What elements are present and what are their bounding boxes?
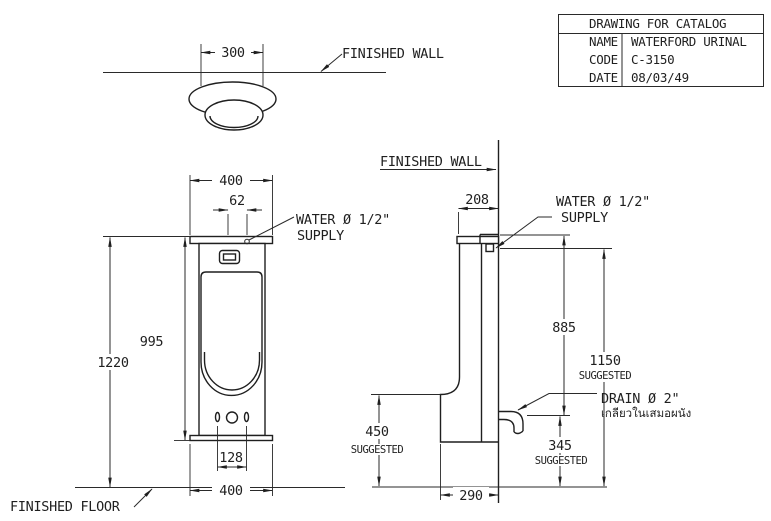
- dim-345: 345: [548, 438, 572, 454]
- title-row-label: NAME: [589, 34, 618, 49]
- water-supply-label-side-1: WATER Ø 1/2": [556, 194, 650, 210]
- dim-128: 128: [219, 450, 243, 466]
- dim-450-note: SUGGESTED: [351, 444, 404, 456]
- dim-290: 290: [459, 488, 483, 504]
- dim-995: 995: [140, 334, 164, 350]
- title-row-label: DATE: [589, 70, 618, 85]
- finished-floor-leader: [134, 489, 152, 507]
- top-view: FINISHED WALL 300: [103, 44, 444, 130]
- title-block-title: DRAWING FOR CATALOG: [589, 16, 726, 31]
- water-supply-label-side-2: SUPPLY: [561, 210, 608, 226]
- finished-wall-leader: [321, 54, 342, 72]
- dim-300: 300: [221, 45, 245, 61]
- water-supply-label-front-1: WATER Ø 1/2": [296, 212, 390, 228]
- catalog-drawing-page: FINISHED WALL 300 400 62: [0, 0, 771, 521]
- dim-1150-note: SUGGESTED: [579, 370, 632, 382]
- front-lid: [190, 237, 273, 244]
- title-row-value: WATERFORD URINAL: [631, 34, 747, 49]
- dim-208: 208: [465, 192, 489, 208]
- side-supply-fitting: [486, 244, 494, 252]
- water-supply-leader-side: [496, 217, 552, 248]
- title-row-value: C-3150: [631, 52, 674, 67]
- drain-leader: [518, 394, 597, 411]
- title-block: DRAWING FOR CATALOG NAME WATERFORD URINA…: [559, 15, 764, 87]
- drain-label: DRAIN Ø 2": [601, 391, 679, 407]
- dim-400-bottom: 400: [219, 483, 243, 499]
- dim-400-top: 400: [219, 173, 243, 189]
- side-lip-and-bottom: [441, 377, 499, 442]
- urinal-top-dome: [205, 100, 263, 130]
- side-lid: [457, 237, 499, 244]
- finished-floor-label: FINISHED FLOOR: [10, 499, 121, 515]
- finished-wall-label-side: FINISHED WALL: [380, 154, 482, 170]
- title-row-label: CODE: [589, 52, 618, 67]
- front-view: 400 62 WATER Ø 1/2" SUPPLY 995 1220 FINI…: [10, 172, 390, 515]
- title-row-value: 08/03/49: [631, 70, 689, 85]
- dim-345-note: SUGGESTED: [535, 455, 588, 467]
- front-base: [190, 436, 273, 441]
- dim-450: 450: [365, 424, 389, 440]
- drain-pipe-end: [514, 431, 523, 434]
- drawing-canvas: FINISHED WALL 300 400 62: [0, 0, 771, 521]
- side-view: FINISHED WALL 208 WATER Ø 1/2" SUPPLY 88…: [347, 140, 691, 504]
- finished-wall-label-top: FINISHED WALL: [342, 46, 444, 62]
- drain-pipe-inner: [499, 420, 515, 433]
- dim-1150: 1150: [589, 353, 620, 369]
- drain-note-thai: เกลียวในเสมอผนัง: [601, 406, 691, 420]
- dim-1220: 1220: [97, 355, 128, 371]
- water-supply-label-front-2: SUPPLY: [297, 228, 344, 244]
- dim-62: 62: [229, 193, 245, 209]
- dim-885: 885: [552, 320, 576, 336]
